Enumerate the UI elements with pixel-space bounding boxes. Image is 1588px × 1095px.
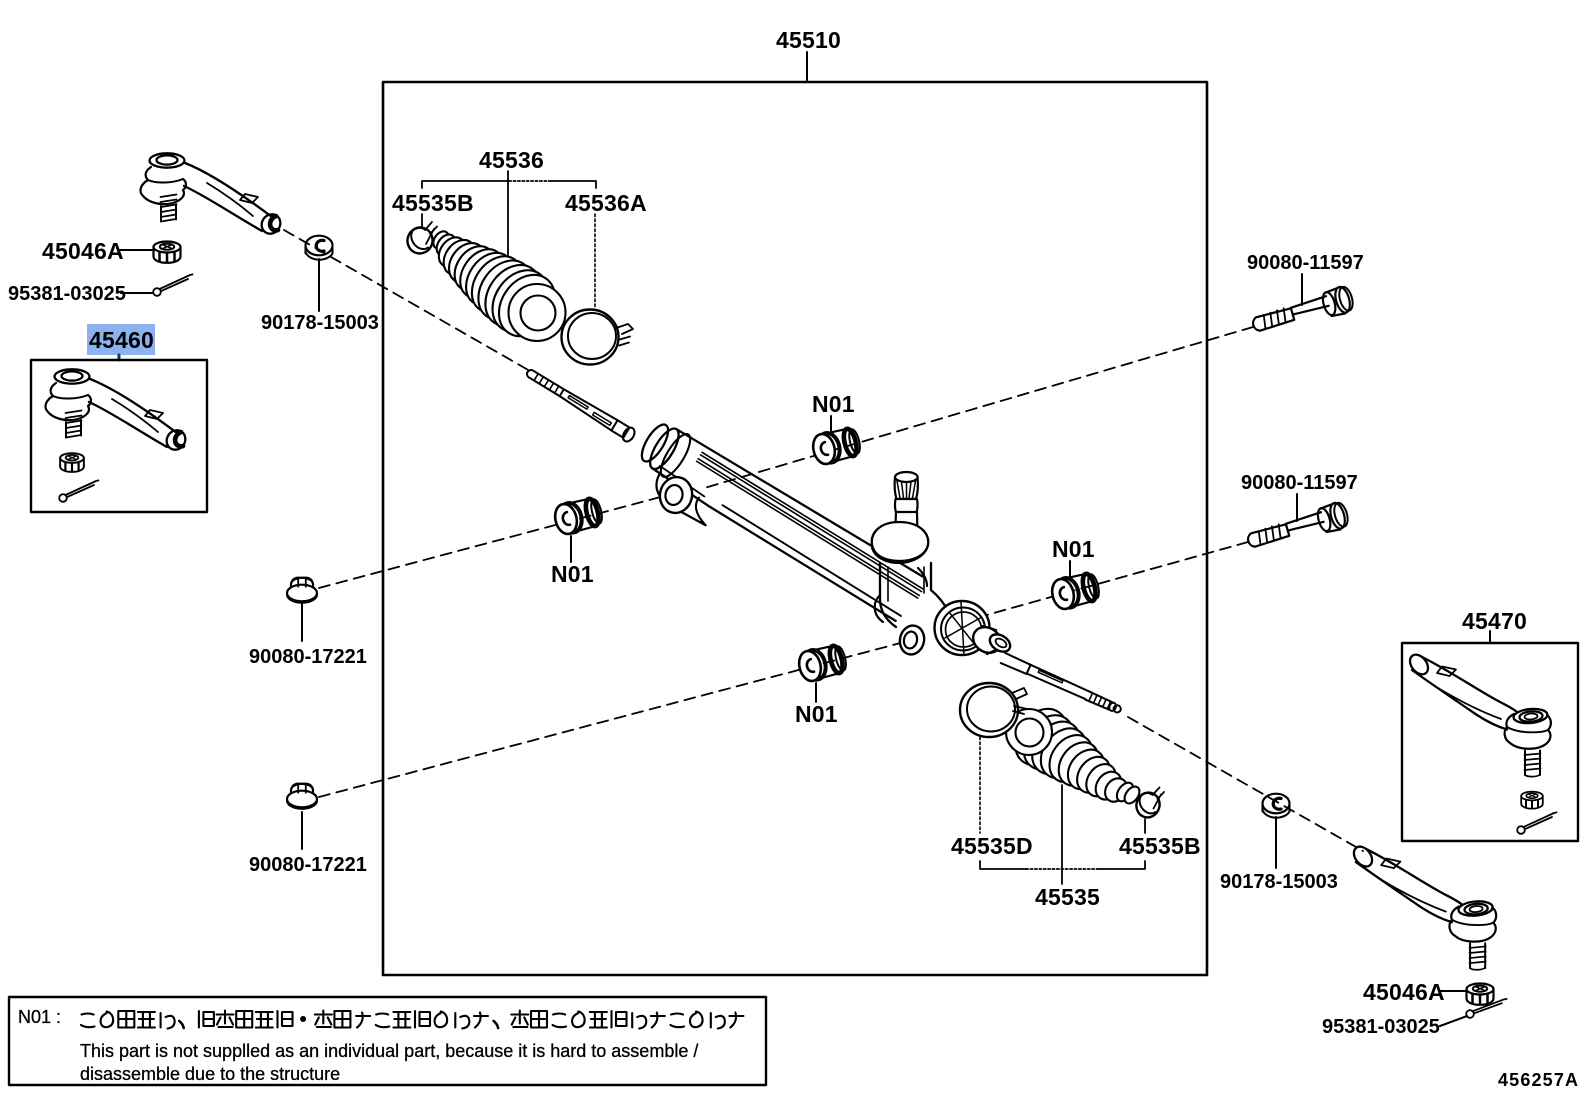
svg-text:95381-03025: 95381-03025 [1322,1016,1440,1038]
svg-text:45535B: 45535B [392,190,474,216]
svg-text:45046A: 45046A [1363,979,1445,1005]
svg-text:N01: N01 [812,391,855,417]
svg-text:N01: N01 [795,701,838,727]
svg-text:45046A: 45046A [42,238,124,264]
svg-text:90080-11597: 90080-11597 [1241,472,1358,494]
svg-text:45470: 45470 [1462,608,1527,634]
svg-text:45536: 45536 [479,147,544,173]
svg-text:45536A: 45536A [565,190,647,216]
svg-text:45535B: 45535B [1119,833,1201,859]
svg-text:This part is not supplled as a: This part is not supplled as an individu… [80,1041,698,1061]
svg-text:90080-17221: 90080-17221 [249,646,367,668]
svg-text:45510: 45510 [776,27,841,53]
svg-text:90178-15003: 90178-15003 [261,312,379,334]
svg-text:45535: 45535 [1035,884,1100,910]
svg-text:45460: 45460 [89,327,154,353]
svg-text:90178-15003: 90178-15003 [1220,871,1338,893]
svg-text:456257A: 456257A [1498,1070,1578,1090]
svg-text:45535D: 45535D [951,833,1033,859]
svg-text:90080-17221: 90080-17221 [249,854,367,876]
svg-text:disassemble due to the struct: disassemble due to the structure [80,1064,340,1084]
svg-text:95381-03025: 95381-03025 [8,283,126,305]
svg-text:N01: N01 [1052,536,1095,562]
svg-text:N01: N01 [551,561,594,587]
svg-text:90080-11597: 90080-11597 [1247,252,1364,274]
svg-text:N01 :: N01 : [18,1007,61,1027]
